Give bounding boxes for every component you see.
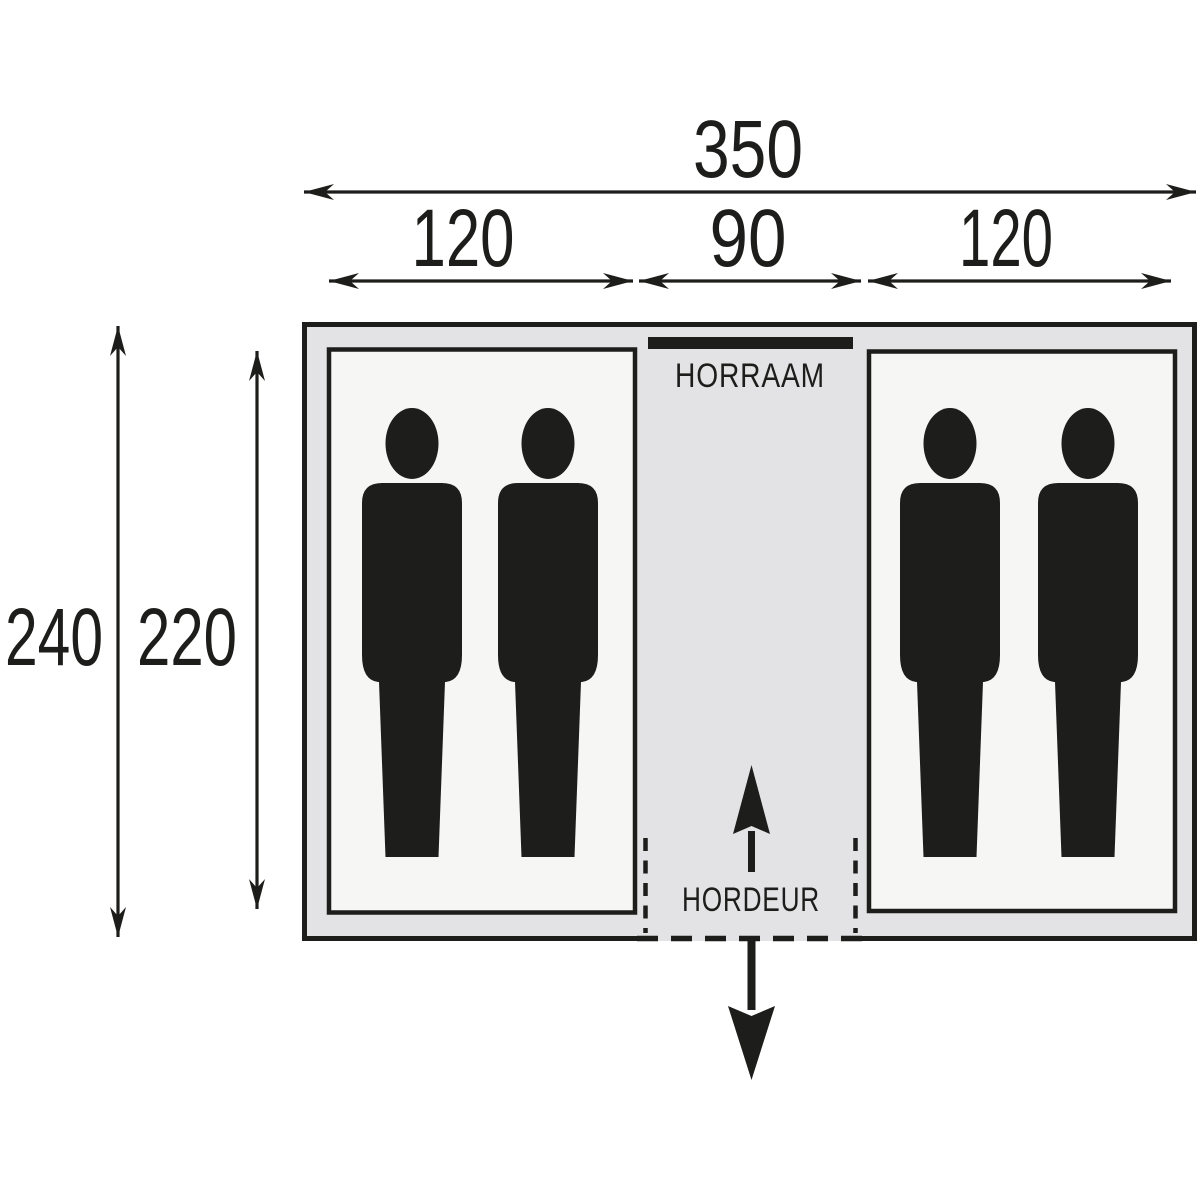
dimension-right-cabin-width: 120 [868, 193, 1171, 284]
dimension-left-cabin-width-label: 120 [412, 193, 515, 284]
dimension-inner-depth: 220 [137, 351, 257, 909]
dimension-left-cabin-width: 120 [329, 193, 633, 284]
tent-floorplan-diagram: 350 120 90 120 240 220 [0, 0, 1200, 1200]
window-label: HORRAAM [675, 357, 825, 395]
dimension-inner-depth-label: 220 [137, 592, 237, 683]
dimension-outer-depth-label: 240 [5, 592, 103, 683]
door-out-arrow-icon [728, 941, 775, 1080]
window-area: HORRAAM [648, 337, 853, 395]
dimension-corridor-width: 90 [639, 193, 861, 284]
dimension-total-width-label: 350 [693, 104, 803, 195]
tent-floorplan-page: 350 120 90 120 240 220 [0, 0, 1200, 1200]
dimension-right-cabin-width-label: 120 [959, 193, 1053, 284]
window-bar-icon [648, 337, 853, 349]
dimension-outer-depth: 240 [5, 326, 118, 937]
dimension-corridor-width-label: 90 [710, 193, 787, 284]
door-label: HORDEUR [682, 881, 820, 919]
dimension-total-width: 350 [304, 104, 1196, 195]
